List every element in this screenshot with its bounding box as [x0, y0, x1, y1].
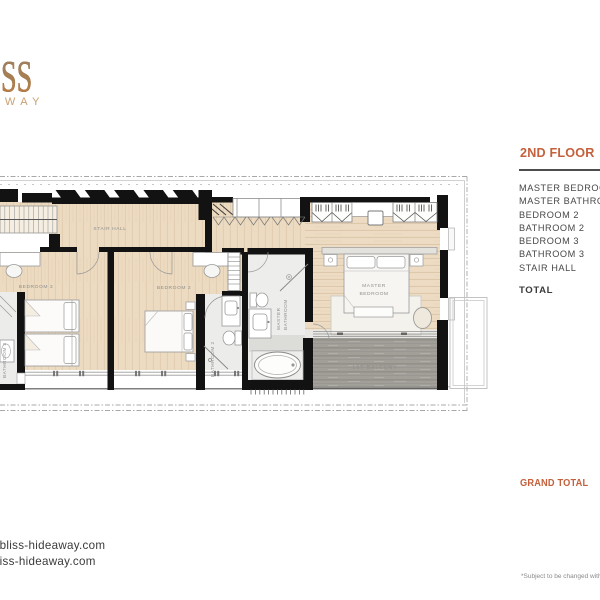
svg-text:BEDROOM: BEDROOM	[359, 291, 388, 297]
svg-text:BATHROOM: BATHROOM	[283, 299, 288, 330]
svg-text:STAIR HALL: STAIR HALL	[93, 226, 126, 232]
svg-text:BEDROOM 2: BEDROOM 2	[157, 285, 191, 291]
svg-text:MASTER: MASTER	[362, 283, 386, 289]
svg-text:1ST BALCONY: 1ST BALCONY	[352, 365, 397, 371]
svg-text:BATHROOM 2: BATHROOM 2	[210, 341, 215, 377]
svg-text:MASTER: MASTER	[276, 307, 281, 330]
svg-text:BATHROOM 3: BATHROOM 3	[2, 342, 7, 378]
svg-text:BEDROOM 3: BEDROOM 3	[19, 284, 53, 290]
